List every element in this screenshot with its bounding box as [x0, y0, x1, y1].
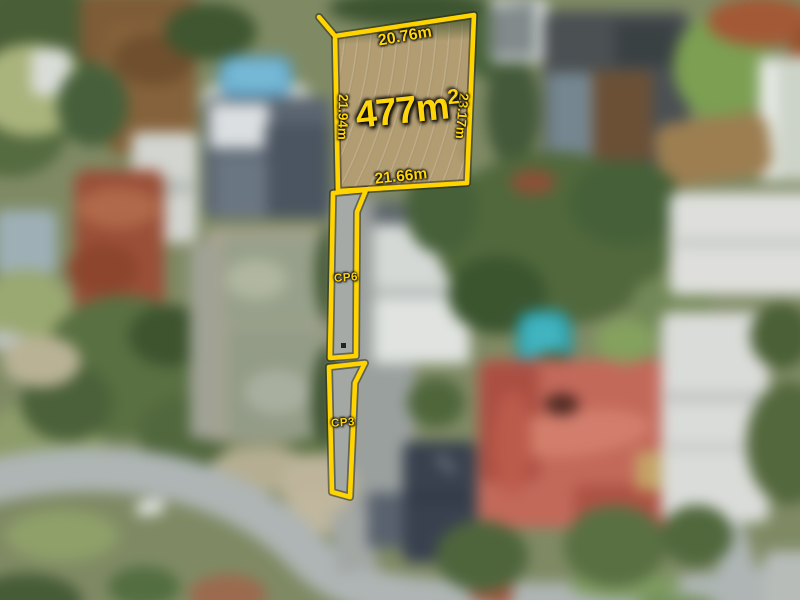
cp6-parcel-label: CP6 [334, 271, 359, 285]
area-value: 477m [354, 85, 451, 137]
aerial-listing-photo: 20.76m 21.94m 23.17m 21.66m 477m2 CP6 CP… [0, 0, 800, 600]
corner-flag-line [319, 17, 335, 36]
area-exponent: 2 [446, 85, 460, 109]
cp3-parcel-label: CP3 [331, 416, 356, 430]
dimension-label-left: 21.94m [335, 94, 351, 140]
survey-marker-dot [341, 343, 346, 348]
